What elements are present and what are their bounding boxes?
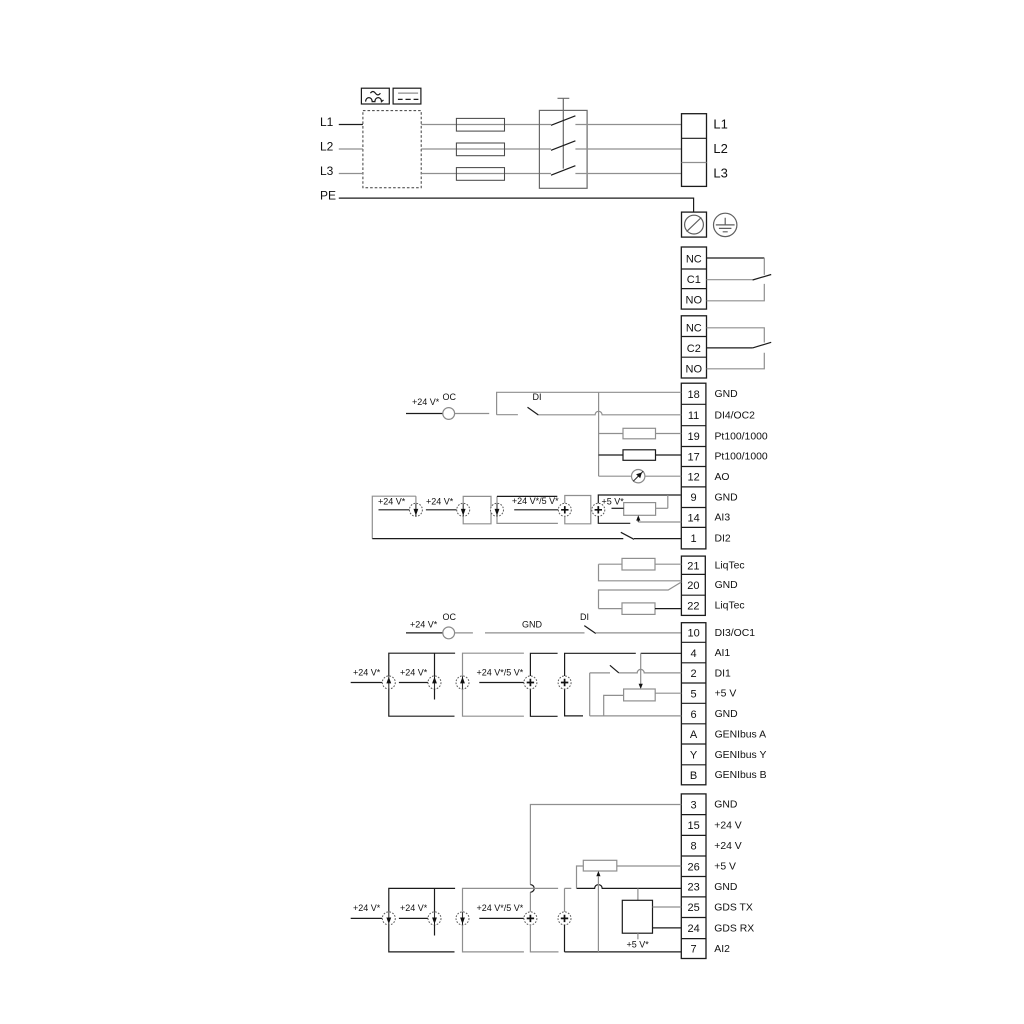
svg-text:PE: PE bbox=[320, 189, 336, 203]
svg-text:22: 22 bbox=[687, 600, 699, 612]
svg-text:25: 25 bbox=[687, 902, 699, 914]
svg-text:AI1: AI1 bbox=[715, 648, 731, 659]
svg-text:L2: L2 bbox=[713, 141, 727, 156]
svg-text:OC: OC bbox=[443, 612, 457, 622]
svg-text:DI4/OC2: DI4/OC2 bbox=[715, 410, 756, 421]
svg-text:NO: NO bbox=[686, 364, 703, 376]
svg-text:GENIbus B: GENIbus B bbox=[715, 770, 767, 781]
svg-text:24: 24 bbox=[687, 923, 699, 935]
svg-text:+5 V: +5 V bbox=[715, 689, 737, 700]
svg-text:+24 V: +24 V bbox=[714, 820, 742, 831]
svg-text:+5 V*: +5 V* bbox=[627, 940, 650, 950]
svg-text:DI3/OC1: DI3/OC1 bbox=[715, 628, 756, 639]
svg-text:20: 20 bbox=[687, 580, 699, 592]
svg-text:DI: DI bbox=[580, 612, 589, 622]
svg-text:NC: NC bbox=[686, 254, 702, 266]
svg-text:Pt100/1000: Pt100/1000 bbox=[715, 452, 768, 463]
svg-text:GND: GND bbox=[714, 800, 737, 811]
svg-text:+24 V*/5 V*: +24 V*/5 V* bbox=[477, 903, 524, 913]
svg-text:LiqTec: LiqTec bbox=[715, 601, 745, 612]
svg-text:GND: GND bbox=[715, 492, 738, 503]
svg-text:8: 8 bbox=[691, 841, 697, 853]
svg-text:GND: GND bbox=[714, 882, 737, 893]
svg-text:L1: L1 bbox=[320, 115, 334, 129]
svg-text:L3: L3 bbox=[713, 166, 727, 181]
svg-text:+24 V*: +24 V* bbox=[412, 397, 440, 407]
svg-text:GND: GND bbox=[715, 709, 738, 720]
svg-text:AO: AO bbox=[715, 472, 730, 483]
svg-text:6: 6 bbox=[691, 709, 697, 721]
svg-text:AI2: AI2 bbox=[714, 944, 730, 955]
svg-text:+24 V*: +24 V* bbox=[400, 903, 428, 913]
svg-text:21: 21 bbox=[687, 560, 699, 572]
svg-text:23: 23 bbox=[687, 882, 699, 894]
svg-text:A: A bbox=[690, 729, 698, 741]
svg-text:+24 V*: +24 V* bbox=[426, 496, 454, 506]
svg-text:GENIbus Y: GENIbus Y bbox=[715, 750, 767, 761]
svg-text:+24 V*: +24 V* bbox=[353, 668, 381, 678]
svg-text:+5 V*: +5 V* bbox=[602, 497, 625, 507]
svg-text:OC: OC bbox=[443, 392, 457, 402]
svg-text:+24 V*: +24 V* bbox=[400, 668, 428, 678]
svg-text:GND: GND bbox=[715, 389, 738, 400]
svg-text:DI2: DI2 bbox=[715, 533, 731, 544]
svg-text:12: 12 bbox=[687, 472, 699, 484]
svg-text:LiqTec: LiqTec bbox=[715, 561, 745, 572]
svg-text:19: 19 bbox=[687, 431, 699, 443]
svg-text:+24 V*: +24 V* bbox=[410, 620, 438, 630]
svg-text:+24 V*/5 V*: +24 V*/5 V* bbox=[512, 496, 559, 506]
svg-text:17: 17 bbox=[687, 451, 699, 463]
svg-text:15: 15 bbox=[687, 820, 699, 832]
svg-text:14: 14 bbox=[687, 512, 699, 524]
svg-text:GDS RX: GDS RX bbox=[714, 923, 754, 934]
svg-text:2: 2 bbox=[691, 668, 697, 680]
svg-text:7: 7 bbox=[691, 944, 697, 956]
svg-text:Pt100/1000: Pt100/1000 bbox=[715, 431, 768, 442]
svg-text:L3: L3 bbox=[320, 164, 334, 178]
svg-text:AI3: AI3 bbox=[715, 513, 731, 524]
svg-text:+5 V: +5 V bbox=[714, 862, 736, 873]
svg-text:3: 3 bbox=[691, 799, 697, 811]
svg-text:Y: Y bbox=[690, 750, 698, 762]
svg-text:9: 9 bbox=[691, 492, 697, 504]
svg-text:GND: GND bbox=[522, 619, 543, 629]
svg-text:L2: L2 bbox=[320, 140, 334, 154]
svg-text:DI1: DI1 bbox=[715, 668, 731, 679]
svg-text:NC: NC bbox=[686, 322, 702, 334]
svg-text:18: 18 bbox=[687, 389, 699, 401]
svg-text:C2: C2 bbox=[687, 343, 701, 355]
svg-text:NO: NO bbox=[686, 295, 703, 307]
svg-text:B: B bbox=[690, 770, 697, 782]
svg-text:+24 V: +24 V bbox=[714, 841, 742, 852]
svg-text:+24 V*: +24 V* bbox=[353, 903, 381, 913]
svg-text:L1: L1 bbox=[713, 117, 727, 132]
svg-text:GND: GND bbox=[715, 580, 738, 591]
svg-text:1: 1 bbox=[691, 533, 697, 545]
svg-text:C1: C1 bbox=[687, 274, 701, 286]
svg-text:10: 10 bbox=[687, 628, 699, 640]
svg-text:5: 5 bbox=[691, 688, 697, 700]
svg-text:4: 4 bbox=[691, 648, 697, 660]
svg-text:GENIbus A: GENIbus A bbox=[715, 729, 766, 740]
svg-text:+24 V*/5 V*: +24 V*/5 V* bbox=[477, 668, 524, 678]
svg-text:26: 26 bbox=[687, 861, 699, 873]
svg-text:GDS TX: GDS TX bbox=[714, 903, 753, 914]
svg-text:+24 V*: +24 V* bbox=[378, 496, 406, 506]
svg-text:11: 11 bbox=[688, 410, 699, 422]
svg-text:DI: DI bbox=[533, 392, 542, 402]
